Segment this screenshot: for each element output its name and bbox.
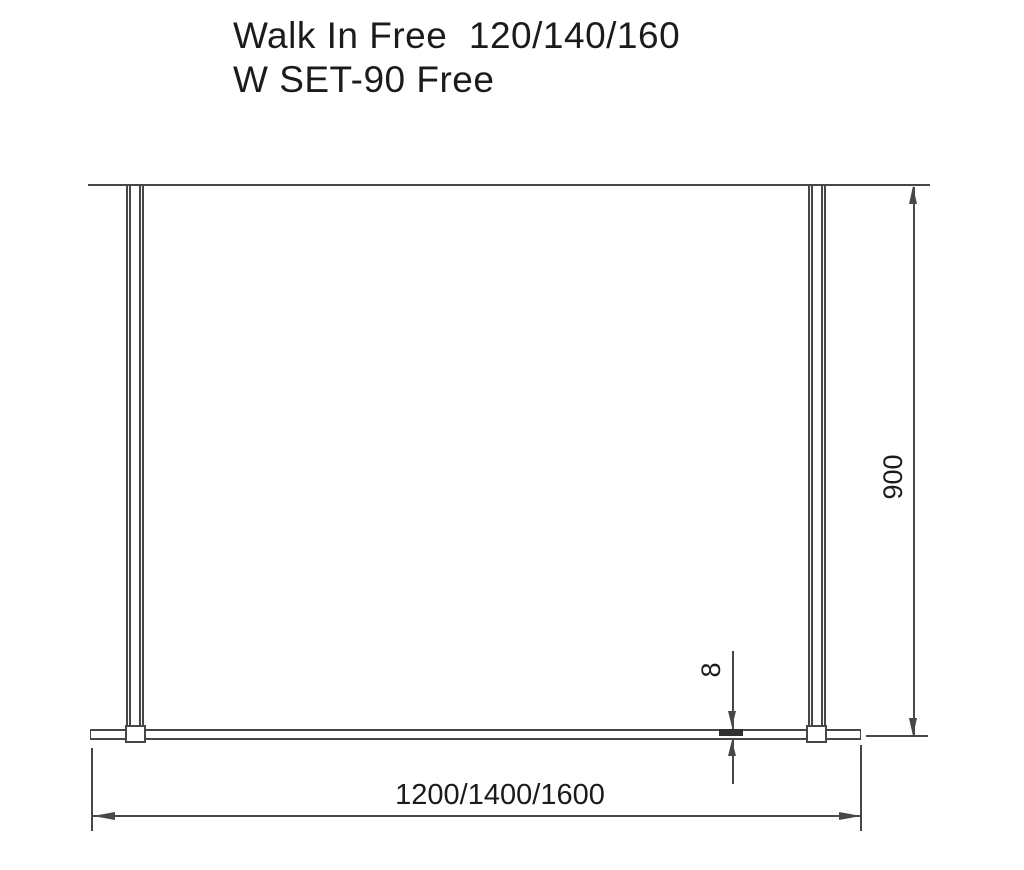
left-support-bar-edge-2 — [139, 186, 144, 726]
left-support-bar-edge-1 — [126, 186, 131, 726]
width-dimension-arrow-right-icon — [839, 812, 861, 820]
width-dimension-arrow-left-icon — [93, 812, 115, 820]
technical-drawing-canvas: Walk In Free 120/140/160 W SET-90 Free 9… — [0, 0, 1024, 870]
height-dimension-label: 900 — [866, 450, 920, 504]
drawing-title-line-2: W SET-90 Free — [233, 58, 494, 102]
height-dimension-arrow-down-icon — [909, 718, 917, 736]
width-dimension-line — [93, 815, 861, 817]
drawing-title-line-1: Walk In Free 120/140/160 — [233, 14, 680, 58]
height-dimension-arrow-up-icon — [909, 186, 917, 204]
glass-section-mark — [719, 729, 743, 736]
glass-panel-strip — [90, 729, 861, 740]
right-support-bar-edge-2 — [821, 186, 826, 726]
left-glass-clamp — [125, 725, 146, 743]
right-glass-clamp — [806, 725, 827, 743]
right-support-bar-edge-1 — [808, 186, 813, 726]
thickness-dimension-arrow-down-icon — [728, 711, 736, 727]
wall-line — [88, 184, 930, 186]
width-dimension-label: 1200/1400/1600 — [335, 779, 665, 807]
thickness-dimension-arrow-up-icon — [728, 740, 736, 756]
height-extension-line — [866, 735, 928, 737]
thickness-dimension-label: 8 — [684, 643, 738, 697]
